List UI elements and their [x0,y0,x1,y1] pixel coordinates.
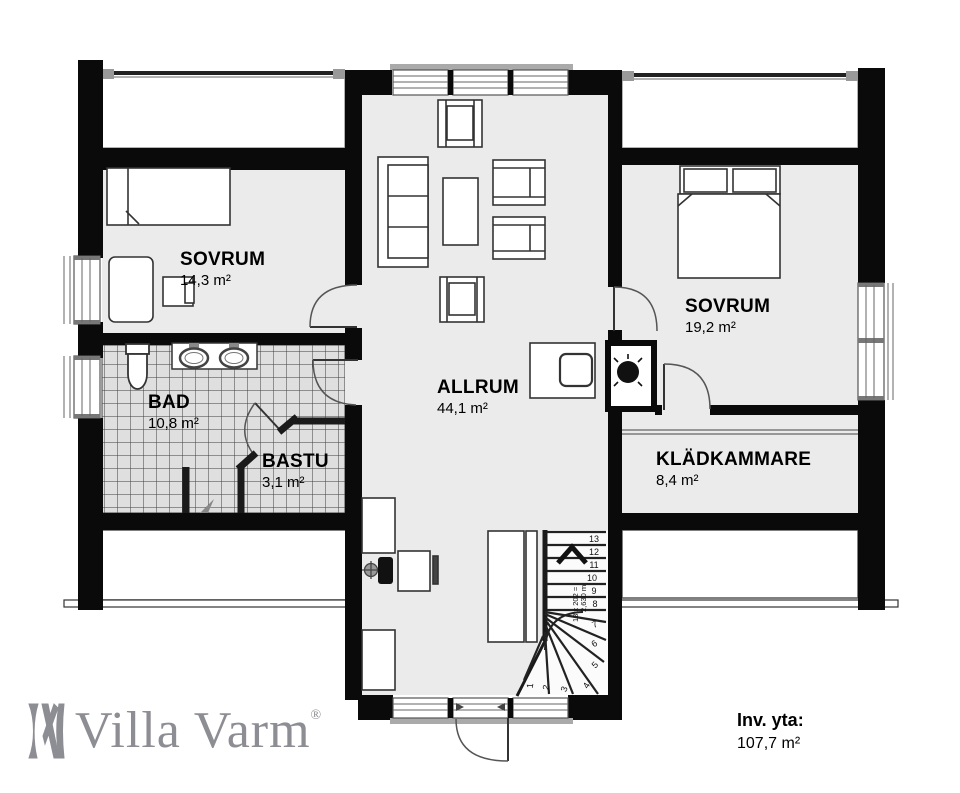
wardrobe [362,630,395,690]
stair-annotation-line2: 2,630 m [579,585,588,612]
armchair [438,100,482,147]
room-label-sovrum2: SOVRUM 19,2 m² [685,297,770,336]
room-label-sovrum1: SOVRUM 14,3 m² [180,250,265,289]
wall-cap [622,71,634,81]
window-sill [390,718,573,724]
knee-wall-right [608,600,898,607]
registered-trademark-icon: ® [311,708,322,723]
room-area: 10,8 m² [148,416,199,433]
step-number: 13 [589,534,599,544]
room-label-bastu: BASTU 3,1 m² [262,452,329,491]
room-name: SOVRUM [685,297,770,318]
wall [608,410,622,700]
armchair [493,160,545,205]
pillow [733,169,776,192]
window-bottom-row [393,698,568,718]
tv-bench [530,343,595,398]
wall [622,148,858,165]
window-top-row [393,70,568,95]
wall [622,513,858,530]
villa-varm-logo: Villa Varm® [26,701,321,760]
wall [858,400,885,610]
wall [362,70,392,95]
chimney [605,340,657,412]
armchair [440,277,484,322]
wall [345,328,362,360]
armchair [493,217,545,259]
balcony-top-left [102,77,345,148]
wall [710,405,858,415]
room-area: 3,1 m² [262,475,329,492]
window-right [858,283,893,400]
total-area-value: 107,7 m² [737,735,804,753]
attic-strip-bottom-left [100,530,358,600]
balcony-door [456,718,508,761]
wall [608,70,622,287]
coffee-table [443,178,478,245]
attic-strip-bottom-right [622,530,858,598]
single-bed [107,168,230,225]
double-bed [678,166,780,278]
sofa [378,157,428,267]
step-number: 12 [589,547,599,557]
logo-text: Villa Varm [75,702,311,759]
total-area-block: Inv. yta: 107,7 m² [737,710,804,753]
room-label-bad: BAD 10,8 m² [148,393,199,432]
door-opening [662,405,710,415]
pillow [684,169,727,192]
wall [78,513,360,530]
wall-cap [846,71,858,81]
room-area: 8,4 m² [656,473,811,490]
room-name: SOVRUM [180,250,265,271]
window-left-1 [64,256,100,324]
room-name: BASTU [262,452,329,473]
wardrobe [362,498,395,553]
room-name: BAD [148,393,199,414]
step-number: 9 [591,586,596,596]
room-area: 44,1 m² [437,401,519,418]
room-label-allrum: ALLRUM 44,1 m² [437,378,519,417]
wall [345,405,362,700]
wall [345,70,362,285]
wall [358,695,393,720]
sink-counter [172,343,257,369]
monitor [433,556,438,584]
step-number: 1 [525,683,535,689]
wall [78,60,103,258]
window-sill [390,64,573,70]
room-name: KLÄDKAMMARE [656,450,811,471]
room-area: 19,2 m² [685,320,770,337]
room-label-kladkammare: KLÄDKAMMARE 8,4 m² [656,450,811,489]
door-opening [345,360,362,405]
stair-guard [526,531,537,642]
villa-varm-logo-mark [26,702,66,760]
knee-wall-left [64,600,360,607]
room-name: ALLRUM [437,378,519,399]
tv [560,354,592,386]
room-area: 14,3 m² [180,273,265,290]
total-area-label: Inv. yta: [737,710,804,731]
step-number: 11 [589,560,598,570]
wall-cap [333,69,345,79]
dresser [109,257,153,322]
floor-plan-page: 13 12 11 10 9 8 7 6 5 4 3 2 1 13 x 202 =… [0,0,960,793]
wall [858,68,885,283]
step-number: 10 [587,573,597,583]
window-left-2 [64,356,100,418]
balcony-top-right [622,79,858,148]
door-opening [345,285,362,328]
wall [102,148,360,170]
stair-guard [488,531,524,642]
wall-cap [102,69,114,79]
wall [78,322,103,358]
step-number: 8 [592,599,597,609]
toilet [126,344,149,389]
